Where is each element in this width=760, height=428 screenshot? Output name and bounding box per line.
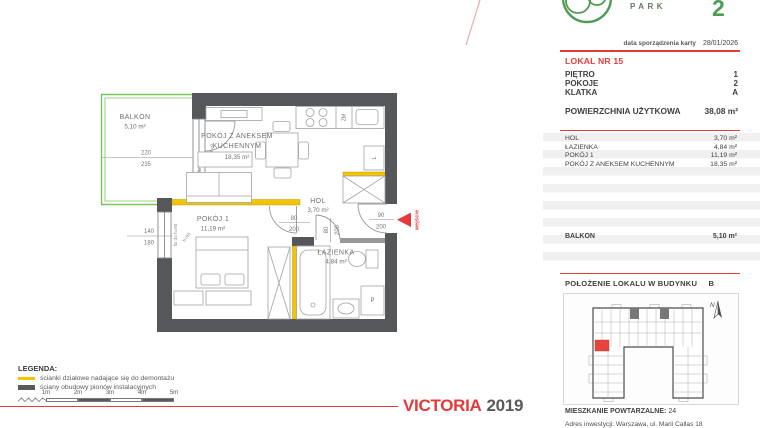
- bath-door-width: 80: [324, 226, 330, 233]
- entry-door-height: 200: [376, 225, 387, 231]
- date-label: data sporządzenia karty: [623, 40, 695, 47]
- room-row-lazienka: ŁAZIENKA 4,84 m²: [565, 144, 737, 153]
- unit-title: LOKAL NR 15: [565, 56, 623, 66]
- scale-label-1m: 1m: [42, 390, 50, 396]
- washer-label: P: [370, 298, 374, 304]
- scale-label-5m: 5m: [170, 390, 178, 396]
- legend-title: LEGENDA:: [18, 364, 57, 373]
- balcony-door-note2: h=0: [209, 144, 214, 152]
- bedroom-area: 11,19 m²: [201, 226, 225, 233]
- park-label: PARK: [630, 2, 666, 11]
- room-row-hol: HOL 3,70 m²: [565, 135, 737, 144]
- room-name: ŁAZIENKA: [565, 144, 598, 153]
- victoria-logo: VICTORIA2019: [403, 396, 523, 416]
- bedroom-door-height: 200: [289, 227, 300, 233]
- north-arrow-icon: N: [710, 301, 722, 318]
- info-row-rooms: POKOJE 2: [565, 79, 738, 88]
- scale-seg-2: [78, 398, 110, 403]
- room-row-aneks: POKÓJ Z ANEKSEM KUCHENNYM 18,35 m²: [565, 161, 737, 170]
- scale-bar: 1m 2m 3m 4m 5m: [0, 390, 200, 404]
- room-name: POKÓJ Z ANEKSEM KUCHENNYM: [565, 161, 675, 170]
- usable-area-label: POWIERZCHNIA UŻYTKOWA: [565, 106, 681, 116]
- entrance-label: wejście: [415, 210, 421, 232]
- fridge-label: L: [372, 156, 378, 159]
- room-area: 3,70 m²: [714, 135, 737, 144]
- dishwasher-label: ZM: [342, 114, 348, 121]
- location-label: POŁOŻENIE LOKALU W BUDYNKU: [565, 279, 697, 288]
- repeat-unit-row: MIESZKANIE POWTARZALNE: 24: [565, 408, 676, 415]
- card-date-row: data sporządzenia karty 28/01/2026: [560, 40, 738, 47]
- entrance-arrow-icon: [397, 213, 411, 228]
- room-row-pokoj1: POKÓJ 1 11,19 m²: [565, 152, 737, 161]
- bath-door-height: 200: [335, 224, 341, 235]
- bathroom-area: 4,84 m²: [325, 259, 346, 266]
- hall-label: HOL: [310, 198, 326, 205]
- scale-label-2m: 2m: [74, 390, 82, 396]
- unit-info: PIĘTRO 1 POKOJE 2 KLATKA A: [565, 70, 738, 98]
- rooms-list: HOL 3,70 m² ŁAZIENKA 4,84 m² POKÓJ 1 11,…: [543, 133, 760, 269]
- room-area: 18,35 m²: [710, 161, 737, 170]
- floor-value: 1: [734, 70, 738, 79]
- rooms-label: POKOJE: [565, 79, 598, 88]
- scale-label-4m: 4m: [138, 390, 146, 396]
- scale-seg-1: [46, 398, 78, 403]
- legend-swatch-demountable: [18, 377, 35, 380]
- usable-area-row: POWIERZCHNIA UŻYTKOWA 38,08 m²: [565, 106, 738, 116]
- balcony-outline: [102, 95, 193, 205]
- info-row-floor: PIĘTRO 1: [565, 70, 738, 79]
- bathroom-top-wall: [340, 238, 385, 243]
- balcony-area: 5,10 m²: [124, 124, 145, 131]
- room-area: 11,19 m²: [711, 152, 737, 161]
- room-name: HOL: [565, 135, 579, 144]
- room-row-balkon: BALKON 5,10 m²: [565, 233, 737, 242]
- north-label: N: [710, 302, 715, 309]
- living-area: 18,35 m²: [225, 154, 250, 161]
- staircase-value: A: [732, 88, 738, 97]
- building-outline: [593, 308, 703, 398]
- living-label-1: POKÓJ Z ANEKSEM: [201, 131, 273, 140]
- scale-seg-3: [110, 398, 142, 403]
- room-name: BALKON: [565, 233, 595, 242]
- scale-zigzag: [18, 397, 46, 403]
- highlighted-unit: [595, 340, 609, 351]
- bedroom-door-width: 80: [291, 216, 298, 222]
- building-location-map: N: [563, 293, 739, 405]
- balcony-door-width: 220: [141, 151, 152, 157]
- living-label-2: KUCHENNYM: [213, 143, 262, 150]
- entry-door-width: 90: [378, 213, 385, 219]
- rooms-value: 2: [734, 79, 738, 88]
- victoria-wordmark: VICTORIA: [403, 396, 482, 415]
- hall-area: 3,70 m²: [307, 207, 328, 214]
- window-height: 180: [144, 241, 155, 247]
- building-plan: N: [564, 294, 738, 404]
- panel-rule-top: [560, 50, 740, 52]
- footer-rule: [0, 406, 398, 407]
- balcony-door-note: fix: [197, 167, 202, 172]
- bathroom-label: ŁAZIENKA: [317, 250, 354, 257]
- room-name: POKÓJ 1: [565, 152, 594, 161]
- panel-rule-mid: [560, 130, 740, 132]
- usable-area-value: 38,08 m²: [704, 106, 738, 116]
- stray-red-mark: [455, 0, 490, 50]
- building-number: 2: [712, 0, 725, 22]
- scale-seg-4: [142, 398, 174, 403]
- window-width: 140: [144, 229, 155, 235]
- repeat-value: 24: [668, 408, 676, 415]
- floor-plan: ZM L P BALKON 5,10 m² POKÓJ Z ANEKSEM KU…: [90, 85, 435, 350]
- panel-rule-bottom: [560, 273, 740, 275]
- window-note: fix do h=90: [173, 223, 178, 246]
- repeat-label: MIESZKANIE POWTARZALNE:: [565, 408, 666, 415]
- floor-label: PIĘTRO: [565, 70, 595, 79]
- victoria-year: 2019: [487, 396, 524, 415]
- room-area: 5,10 m²: [713, 233, 737, 242]
- date-value: 28/01/2026: [703, 40, 738, 47]
- balcony-label: BALKON: [120, 114, 151, 121]
- location-building: B: [709, 279, 715, 288]
- apartment-card-page: ZM L P BALKON 5,10 m² POKÓJ Z ANEKSEM KU…: [0, 0, 760, 428]
- investment-address: Adres inwestycji: Warszawa, ul. Marii Ca…: [565, 421, 703, 428]
- scale-label-3m: 3m: [106, 390, 114, 396]
- room-area: 4,84 m²: [714, 144, 737, 153]
- location-title: POŁOŻENIE LOKALU W BUDYNKU B: [565, 279, 714, 288]
- balcony-door-height: 235: [141, 162, 152, 168]
- bedroom-label: POKÓJ 1: [197, 214, 229, 223]
- legend-item-demountable: ścianki działowe nadające się do demonta…: [40, 375, 174, 382]
- staircase-label: KLATKA: [565, 88, 597, 97]
- info-row-staircase: KLATKA A: [565, 88, 738, 97]
- park-logo-icon: [552, 0, 642, 30]
- window-note2: h=95: [182, 231, 192, 243]
